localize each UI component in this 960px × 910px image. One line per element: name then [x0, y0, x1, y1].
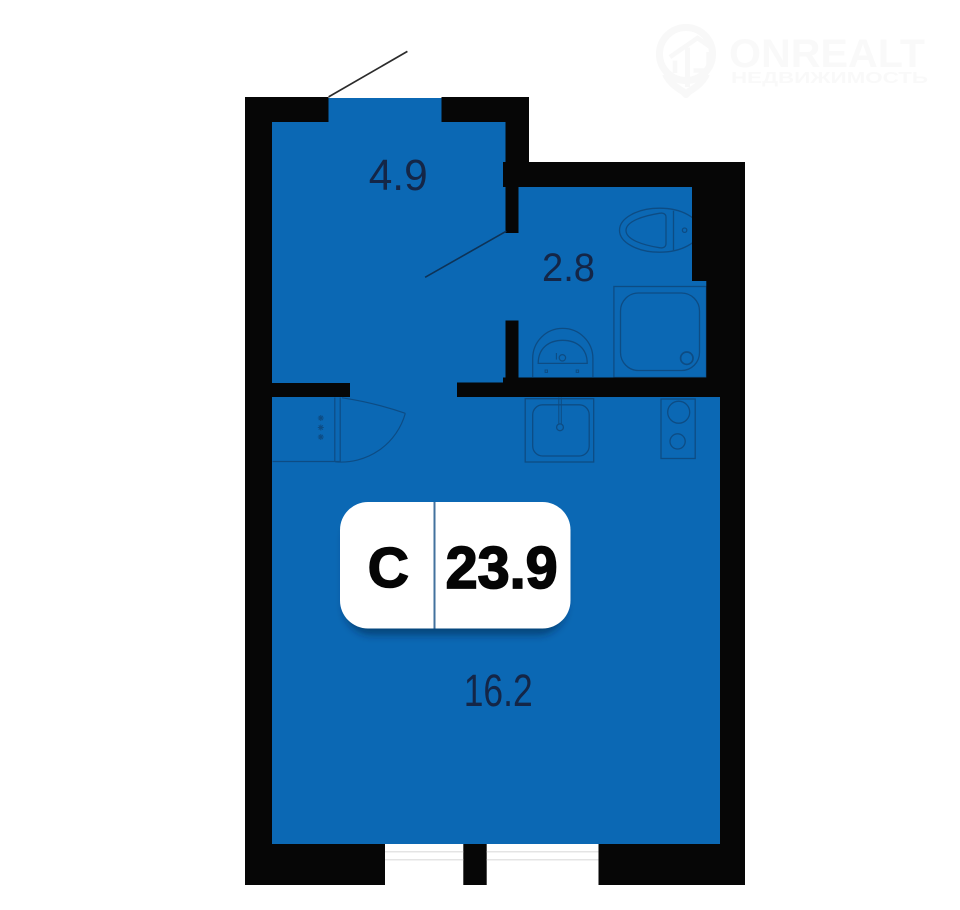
svg-text:23.9: 23.9: [446, 535, 558, 601]
svg-text:4.9: 4.9: [369, 151, 428, 200]
svg-text:2.8: 2.8: [542, 246, 595, 290]
svg-text:16.2: 16.2: [464, 665, 533, 716]
svg-text:НЕДВИЖИМОСТЬ: НЕДВИЖИМОСТЬ: [731, 70, 928, 87]
svg-text:С: С: [368, 536, 409, 600]
